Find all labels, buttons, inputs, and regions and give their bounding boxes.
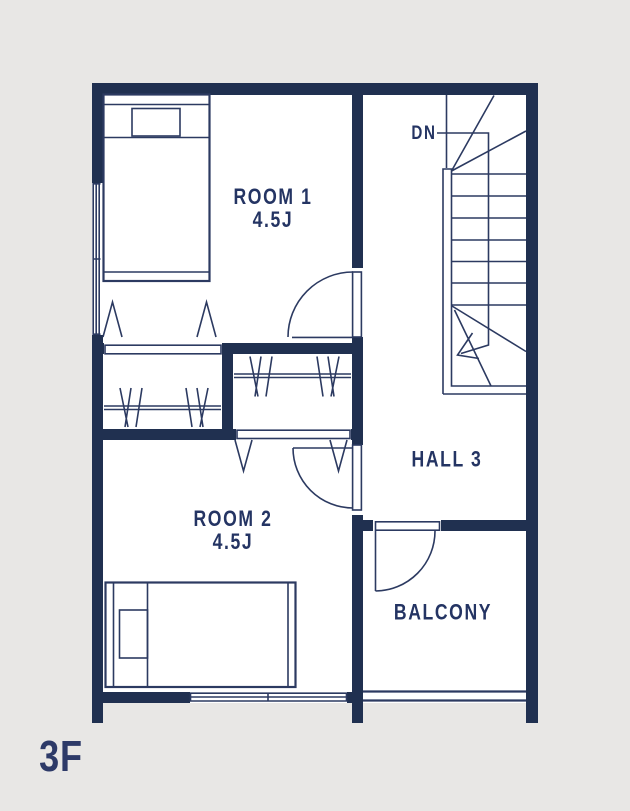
wall-left-upper xyxy=(92,83,103,183)
wall-closet-top-right xyxy=(222,343,363,354)
room1-label: ROOM 1 4.5J xyxy=(233,185,312,231)
room2-label: ROOM 2 4.5J xyxy=(193,507,272,553)
wall-top xyxy=(92,83,538,95)
room2-name: ROOM 2 xyxy=(193,507,272,530)
stairs-down-label: DN xyxy=(411,123,436,145)
room1-size: 4.5J xyxy=(233,208,312,231)
room2-size: 4.5J xyxy=(193,530,272,553)
wall-balcony-left xyxy=(352,520,373,531)
wall-closet-bottom-right xyxy=(351,429,363,440)
wall-balcony-right xyxy=(441,520,538,531)
wall-closet-bottom-left xyxy=(92,429,236,440)
balcony-label: BALCONY xyxy=(394,601,492,624)
room1-name: ROOM 1 xyxy=(233,185,312,208)
wall-mid-lower xyxy=(352,515,363,723)
wall-bottom-right xyxy=(347,692,363,703)
window-left xyxy=(93,183,101,335)
floor-indicator: 3F xyxy=(39,732,83,782)
wall-bottom-left xyxy=(92,692,190,703)
floor-plan: ROOM 1 4.5J ROOM 2 4.5J HALL 3 BALCONY D… xyxy=(0,0,630,811)
wall-closet-top-left xyxy=(92,343,104,354)
closet2-door-track xyxy=(237,430,350,438)
wall-right xyxy=(526,83,538,723)
wall-left-lower xyxy=(92,335,103,723)
closet1-door-track xyxy=(105,345,221,354)
hall-label: HALL 3 xyxy=(412,448,483,471)
wall-mid-upper xyxy=(352,95,363,268)
wall-closet-divider xyxy=(222,343,233,440)
floor-plan-drawing xyxy=(0,0,630,811)
